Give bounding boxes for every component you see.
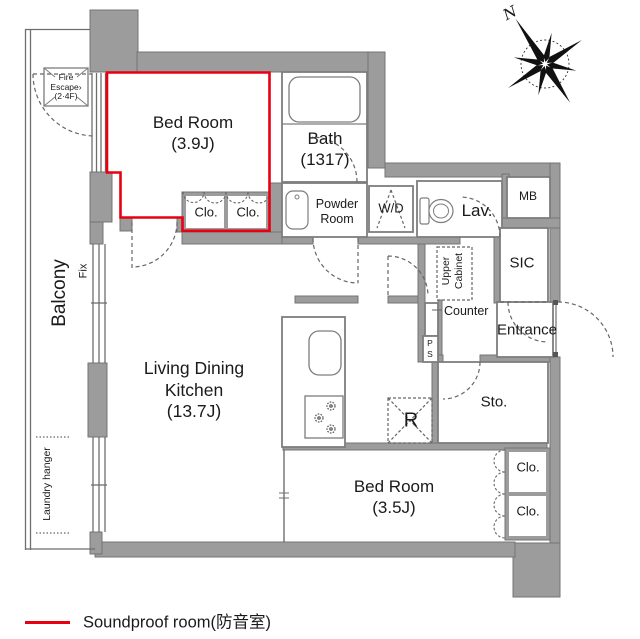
closet-b1-label: Clo.	[516, 461, 539, 476]
legend-soundproof-line	[25, 621, 70, 624]
floor-plan-drawing	[0, 0, 640, 639]
bedroom-balcony-window	[92, 73, 106, 172]
closet-a2-label: Clo.	[236, 206, 259, 221]
counter-label: Counter	[444, 304, 488, 318]
counter-box	[425, 303, 438, 336]
closet-a1-label: Clo.	[194, 206, 217, 221]
sic-label: SIC	[509, 254, 534, 271]
kitchen-sink	[309, 331, 341, 375]
bathtub	[289, 77, 360, 122]
closet-b2-label: Clo.	[516, 505, 539, 520]
bedroom-b-label: Bed Room	[354, 477, 434, 497]
legend-soundproof-label: Soundproof room(防音室)	[83, 614, 271, 633]
balcony-label: Balcony	[49, 259, 71, 327]
fix-window-label: Fix	[78, 264, 91, 279]
pipe-shaft-label: P S	[427, 338, 433, 360]
floor-plan: Bed Room (3.9J) Bath (1317) Clo. Clo. Po…	[0, 0, 640, 639]
ldk-window-lower	[91, 437, 107, 532]
entrance-label: Entrance	[497, 321, 557, 338]
pipe-shaft-p: P	[427, 338, 433, 349]
fire-escape-label: Fire Escape› (2·4F)	[50, 73, 81, 102]
compass-rose	[479, 0, 607, 127]
ldk-window-upper	[91, 244, 107, 363]
ldk-label-1: Living Dining	[144, 358, 244, 378]
fire-escape-line3: (2·4F)	[50, 92, 81, 102]
faucet	[295, 195, 299, 199]
room-boxes	[44, 68, 553, 447]
laundry-hanger-label: Laundry hanger	[41, 447, 53, 521]
toilet-tank	[420, 198, 429, 224]
powder-room-label-2: Room	[320, 212, 353, 226]
upper-cabinet-line1: Upper	[440, 253, 453, 289]
storage-label: Sto.	[481, 393, 508, 410]
bedroom-a-label: Bed Room	[153, 113, 233, 133]
bedroom-a-size: (3.9J)	[171, 134, 214, 154]
stove	[305, 396, 343, 438]
pipe-shaft-s: S	[427, 349, 433, 360]
meter-box-label: MB	[519, 190, 537, 204]
upper-cabinet-line2: Cabinet	[453, 253, 466, 289]
washer-dryer-label: W/D	[378, 202, 403, 217]
upper-cabinet-label: Upper Cabinet	[440, 253, 466, 289]
ldk-label-2: Kitchen	[165, 380, 223, 400]
bath-size: (1317)	[300, 150, 349, 170]
ldk-size: (13.7J)	[167, 401, 221, 421]
folding-doors	[494, 450, 505, 538]
bath-label: Bath	[308, 129, 343, 149]
bedroom-b-size: (3.5J)	[372, 498, 415, 518]
refrigerator-label: R	[404, 410, 418, 433]
powder-room-label-1: Powder	[316, 197, 358, 211]
lavatory-label: Lav.	[462, 201, 493, 221]
kitchen-counter	[282, 317, 345, 447]
